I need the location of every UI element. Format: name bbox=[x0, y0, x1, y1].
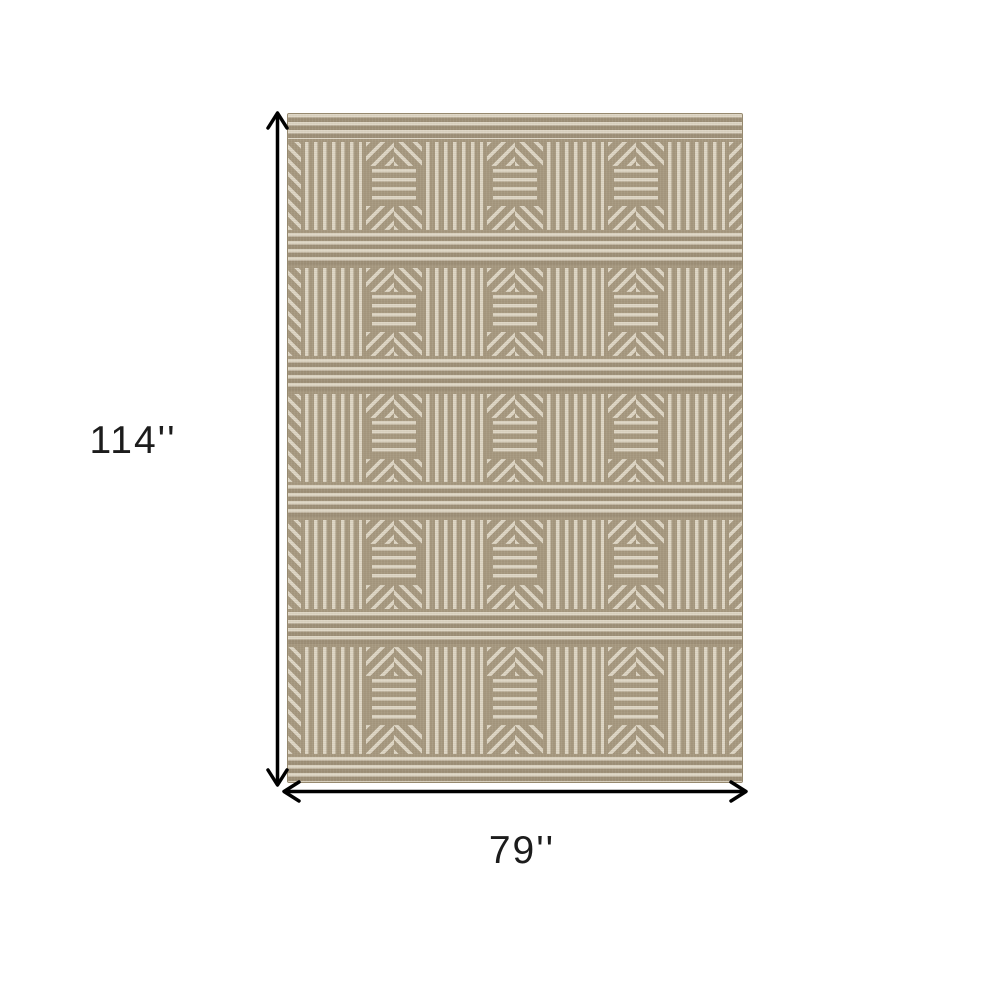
rug-edge-sliver bbox=[729, 268, 742, 356]
chevron-right-stripes bbox=[636, 206, 664, 230]
chevron-section bbox=[487, 206, 544, 230]
chevron-right-stripes bbox=[515, 394, 543, 418]
chevron-left-stripes bbox=[366, 725, 394, 754]
rug-pattern-row bbox=[288, 391, 742, 485]
rug-panel-vertical-stripes bbox=[547, 268, 604, 356]
chevron-middle-stripes bbox=[493, 547, 538, 582]
rug-panel-chevron bbox=[366, 647, 423, 755]
rug-edge-sliver bbox=[729, 520, 742, 608]
chevron-left-stripes bbox=[608, 206, 636, 230]
rug-pattern-row bbox=[288, 139, 742, 233]
chevron-left-stripes bbox=[487, 142, 515, 166]
rug-panel-vertical-stripes bbox=[426, 394, 483, 482]
chevron-section bbox=[608, 206, 665, 230]
rug-panel-vertical-stripes bbox=[547, 520, 604, 608]
rug-panel-vertical-stripes bbox=[668, 647, 725, 755]
chevron-right-stripes bbox=[394, 332, 422, 356]
chevron-middle-stripes bbox=[493, 295, 538, 330]
chevron-section bbox=[366, 268, 423, 292]
chevron-section bbox=[608, 394, 665, 418]
chevron-right-stripes bbox=[515, 585, 543, 609]
chevron-section bbox=[487, 520, 544, 544]
chevron-left-stripes bbox=[608, 520, 636, 544]
chevron-left-stripes bbox=[366, 647, 394, 676]
chevron-right-stripes bbox=[636, 332, 664, 356]
rug-panel-vertical-stripes bbox=[305, 394, 362, 482]
rug-edge-sliver bbox=[288, 520, 301, 608]
chevron-right-stripes bbox=[515, 206, 543, 230]
rug-panel-vertical-stripes bbox=[668, 268, 725, 356]
chevron-right-stripes bbox=[394, 268, 422, 292]
rug-panel-chevron bbox=[487, 647, 544, 755]
chevron-left-stripes bbox=[608, 459, 636, 483]
rug-panel-chevron bbox=[487, 268, 544, 356]
chevron-left-stripes bbox=[366, 142, 394, 166]
chevron-left-stripes bbox=[366, 520, 394, 544]
height-label: 114'' bbox=[72, 421, 194, 460]
rug-pattern-row bbox=[288, 265, 742, 359]
chevron-middle-stripes bbox=[372, 679, 417, 722]
rug-panel-chevron bbox=[608, 520, 665, 608]
rug-panel-vertical-stripes bbox=[426, 647, 483, 755]
rug-panel-chevron bbox=[608, 394, 665, 482]
rug-panel-vertical-stripes bbox=[305, 647, 362, 755]
chevron-middle-stripes bbox=[614, 679, 659, 722]
rug-panel-chevron bbox=[366, 394, 423, 482]
rug-edge-sliver bbox=[288, 647, 301, 755]
rug-panel-chevron bbox=[366, 520, 423, 608]
chevron-right-stripes bbox=[636, 520, 664, 544]
rug-image bbox=[287, 113, 743, 783]
rug-panel-vertical-stripes bbox=[547, 142, 604, 230]
chevron-section bbox=[487, 585, 544, 609]
chevron-section bbox=[487, 647, 544, 676]
rug-panel-vertical-stripes bbox=[668, 142, 725, 230]
chevron-right-stripes bbox=[394, 206, 422, 230]
chevron-middle-stripes bbox=[614, 169, 659, 204]
chevron-left-stripes bbox=[608, 332, 636, 356]
rug-bottom-stripe-band bbox=[288, 757, 742, 782]
chevron-section bbox=[487, 142, 544, 166]
chevron-section bbox=[608, 585, 665, 609]
chevron-left-stripes bbox=[487, 268, 515, 292]
chevron-left-stripes bbox=[487, 647, 515, 676]
chevron-left-stripes bbox=[608, 394, 636, 418]
rug-panel-vertical-stripes bbox=[547, 647, 604, 755]
rug-panel-chevron bbox=[487, 142, 544, 230]
chevron-right-stripes bbox=[394, 647, 422, 676]
chevron-right-stripes bbox=[636, 585, 664, 609]
chevron-right-stripes bbox=[515, 332, 543, 356]
rug-edge-sliver bbox=[729, 647, 742, 755]
chevron-right-stripes bbox=[394, 459, 422, 483]
chevron-section bbox=[608, 459, 665, 483]
chevron-left-stripes bbox=[487, 520, 515, 544]
rug-panel-chevron bbox=[487, 394, 544, 482]
chevron-left-stripes bbox=[487, 206, 515, 230]
chevron-right-stripes bbox=[636, 725, 664, 754]
chevron-section bbox=[487, 725, 544, 754]
rug-panel-chevron bbox=[487, 520, 544, 608]
chevron-section bbox=[487, 268, 544, 292]
chevron-left-stripes bbox=[608, 142, 636, 166]
chevron-left-stripes bbox=[366, 268, 394, 292]
chevron-right-stripes bbox=[515, 647, 543, 676]
chevron-right-stripes bbox=[636, 459, 664, 483]
chevron-left-stripes bbox=[608, 647, 636, 676]
chevron-right-stripes bbox=[394, 585, 422, 609]
chevron-middle-stripes bbox=[614, 547, 659, 582]
rug-panel-chevron bbox=[366, 142, 423, 230]
chevron-right-stripes bbox=[515, 520, 543, 544]
rug-panel-chevron bbox=[366, 268, 423, 356]
chevron-section bbox=[366, 206, 423, 230]
rug-inter-row-stripe-band bbox=[288, 359, 742, 391]
rug-panel-vertical-stripes bbox=[668, 394, 725, 482]
rug-panel-chevron bbox=[608, 142, 665, 230]
chevron-section bbox=[608, 142, 665, 166]
chevron-left-stripes bbox=[366, 206, 394, 230]
chevron-right-stripes bbox=[636, 647, 664, 676]
rug-pattern-row bbox=[288, 644, 742, 758]
chevron-section bbox=[487, 459, 544, 483]
chevron-right-stripes bbox=[394, 394, 422, 418]
rug-panel-vertical-stripes bbox=[547, 394, 604, 482]
chevron-left-stripes bbox=[608, 725, 636, 754]
width-label: 79'' bbox=[462, 831, 582, 870]
chevron-left-stripes bbox=[366, 585, 394, 609]
chevron-middle-stripes bbox=[614, 295, 659, 330]
chevron-section bbox=[366, 725, 423, 754]
chevron-section bbox=[366, 520, 423, 544]
rug-panel-vertical-stripes bbox=[668, 520, 725, 608]
rug-edge-sliver bbox=[729, 142, 742, 230]
chevron-right-stripes bbox=[515, 142, 543, 166]
chevron-left-stripes bbox=[366, 332, 394, 356]
chevron-middle-stripes bbox=[493, 679, 538, 722]
chevron-section bbox=[366, 647, 423, 676]
chevron-right-stripes bbox=[394, 725, 422, 754]
chevron-middle-stripes bbox=[493, 421, 538, 456]
chevron-section bbox=[608, 332, 665, 356]
rug-inter-row-stripe-band bbox=[288, 485, 742, 517]
chevron-section bbox=[608, 725, 665, 754]
chevron-left-stripes bbox=[487, 725, 515, 754]
chevron-section bbox=[487, 332, 544, 356]
chevron-middle-stripes bbox=[372, 295, 417, 330]
rug-panel-vertical-stripes bbox=[305, 142, 362, 230]
chevron-section bbox=[608, 268, 665, 292]
chevron-left-stripes bbox=[608, 268, 636, 292]
rug-rows bbox=[288, 139, 742, 757]
rug-panel-chevron bbox=[608, 268, 665, 356]
rug-panel-vertical-stripes bbox=[426, 142, 483, 230]
rug-edge-sliver bbox=[288, 268, 301, 356]
rug-inter-row-stripe-band bbox=[288, 233, 742, 265]
chevron-right-stripes bbox=[394, 520, 422, 544]
chevron-left-stripes bbox=[487, 394, 515, 418]
rug-inter-row-stripe-band bbox=[288, 612, 742, 644]
chevron-left-stripes bbox=[366, 394, 394, 418]
chevron-section bbox=[366, 394, 423, 418]
chevron-section bbox=[366, 459, 423, 483]
chevron-middle-stripes bbox=[372, 547, 417, 582]
chevron-right-stripes bbox=[394, 142, 422, 166]
rug-panel-vertical-stripes bbox=[426, 520, 483, 608]
rug-panel-vertical-stripes bbox=[305, 268, 362, 356]
chevron-right-stripes bbox=[515, 459, 543, 483]
rug-edge-sliver bbox=[288, 394, 301, 482]
rug-panel-vertical-stripes bbox=[426, 268, 483, 356]
rug-panel-vertical-stripes bbox=[305, 520, 362, 608]
chevron-section bbox=[366, 142, 423, 166]
chevron-section bbox=[366, 585, 423, 609]
chevron-middle-stripes bbox=[493, 169, 538, 204]
chevron-section bbox=[366, 332, 423, 356]
rug-top-stripe-band bbox=[288, 114, 742, 139]
chevron-right-stripes bbox=[515, 725, 543, 754]
chevron-right-stripes bbox=[636, 142, 664, 166]
chevron-right-stripes bbox=[636, 268, 664, 292]
rug-pattern-row bbox=[288, 517, 742, 611]
width-arrow bbox=[284, 782, 746, 801]
chevron-left-stripes bbox=[487, 332, 515, 356]
chevron-left-stripes bbox=[366, 459, 394, 483]
chevron-left-stripes bbox=[487, 585, 515, 609]
chevron-section bbox=[608, 520, 665, 544]
chevron-right-stripes bbox=[636, 394, 664, 418]
rug-edge-sliver bbox=[729, 394, 742, 482]
chevron-right-stripes bbox=[515, 268, 543, 292]
rug-panel-chevron bbox=[608, 647, 665, 755]
chevron-left-stripes bbox=[608, 585, 636, 609]
height-arrow bbox=[268, 113, 287, 785]
chevron-middle-stripes bbox=[372, 421, 417, 456]
chevron-left-stripes bbox=[487, 459, 515, 483]
chevron-section bbox=[608, 647, 665, 676]
chevron-middle-stripes bbox=[372, 169, 417, 204]
chevron-middle-stripes bbox=[614, 421, 659, 456]
chevron-section bbox=[487, 394, 544, 418]
rug-edge-sliver bbox=[288, 142, 301, 230]
